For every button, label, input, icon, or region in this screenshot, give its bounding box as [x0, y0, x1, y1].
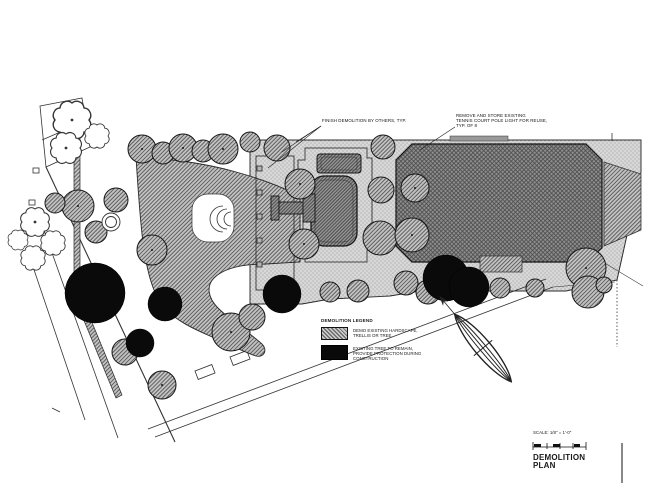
sheet-title: DEMOLITION PLAN [533, 454, 585, 469]
pool [311, 176, 357, 246]
finish-demolition-note: FINISH DEMOLITION BY OTHERS, TYP. [322, 118, 406, 123]
pole-light-note: REMOVE AND STORE EXISTING TENNIS COURT P… [456, 113, 547, 128]
path-landing [192, 194, 234, 242]
court-bench [450, 136, 508, 141]
hatch-swatch [321, 327, 348, 340]
fountain-runnel [279, 202, 305, 214]
court-pad [480, 256, 522, 272]
scale-label: SCALE: 1/8" = 1'-0" [533, 430, 571, 435]
tennis-court-surface [396, 144, 602, 262]
demolition-legend: DEMOLITION LEGEND DEMO EXISTING HARDSCAP… [321, 318, 443, 366]
demolition-plan-sheet: FINISH DEMOLITION BY OTHERS, TYP. REMOVE… [0, 0, 648, 500]
scale-bar [533, 442, 586, 450]
fountain [102, 213, 120, 231]
legend-item-demo-hardscape: DEMO EXISTING HARDSCAPE, TRELLIS OR TREE [321, 327, 443, 340]
trees-existing [8, 101, 109, 270]
site-plan-drawing [0, 0, 648, 500]
court-end-apron [604, 162, 641, 246]
legend-label: DEMO EXISTING HARDSCAPE, TRELLIS OR TREE [353, 327, 418, 338]
black-swatch [321, 345, 348, 360]
legend-item-tree-remain: EXISTING TREE TO REMAIN, PROVIDE PROTECT… [321, 345, 443, 361]
legend-title: DEMOLITION LEGEND [321, 318, 443, 323]
legend-label: EXISTING TREE TO REMAIN, PROVIDE PROTECT… [353, 345, 421, 361]
